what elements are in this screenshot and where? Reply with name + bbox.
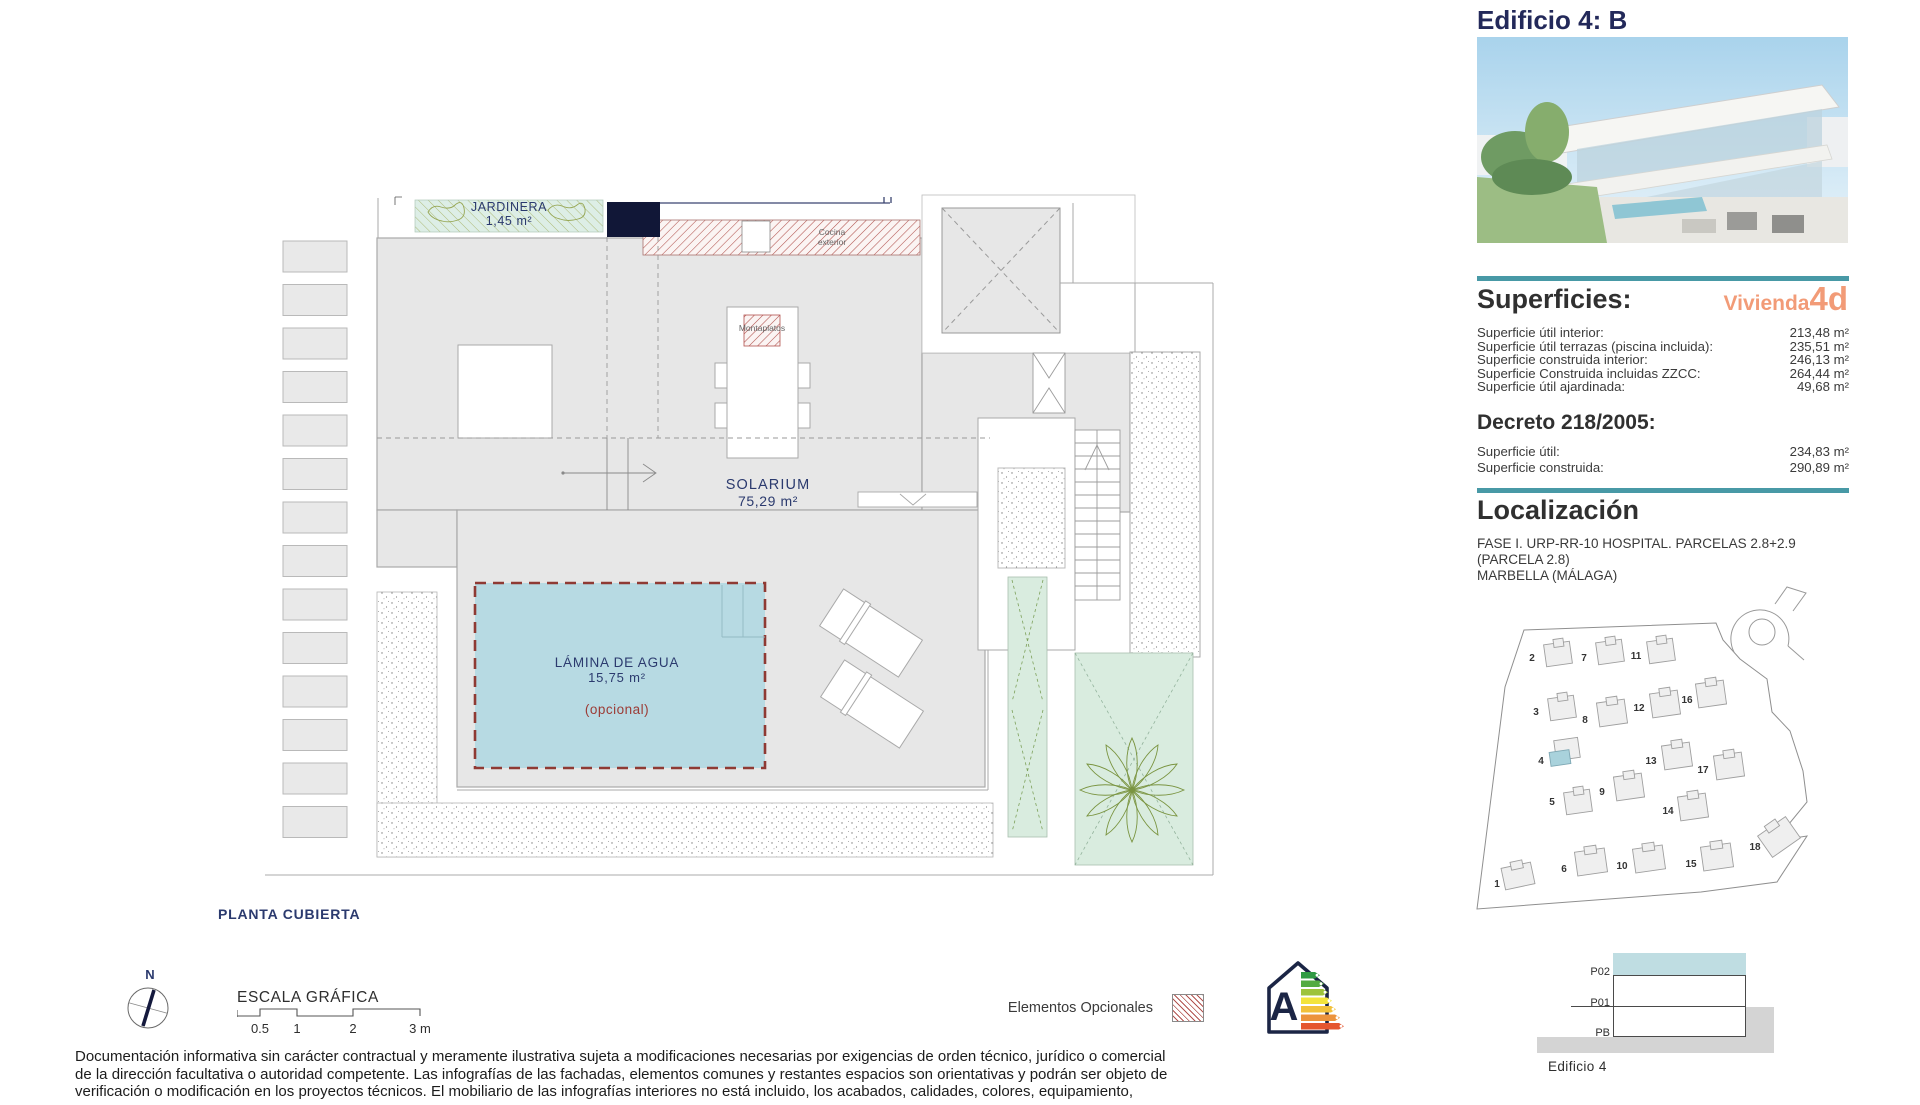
jardinera-label: JARDINERA 1,45 m² [429,200,589,228]
scale-tick: 3 m [409,1021,431,1036]
planter-bed [1075,653,1193,865]
table-row: Superficie Construida incluidas ZZCC: 26… [1477,367,1849,381]
row-value: 290,89 m² [1790,460,1849,476]
solarium-name: SOLARIUM [688,477,848,493]
row-value: 49,68 m² [1797,380,1849,394]
row-value: 246,13 m² [1790,353,1849,367]
pool-name: LÁMINA DE AGUA [527,655,707,670]
shaft [1033,353,1065,413]
jardinera-name: JARDINERA [429,200,589,214]
row-value: 264,44 m² [1790,367,1849,381]
divider-bar [1477,488,1849,493]
map-number: 2 [1529,653,1535,664]
map-number: 5 [1549,797,1555,808]
site-plan-map: 1 2 3 4 5 6 7 8 9 10 11 12 13 14 15 16 1… [1470,580,1920,910]
map-number: 4 [1538,756,1544,767]
map-number: 17 [1697,765,1709,776]
disclaimer-text: Documentación informativa sin carácter c… [75,1048,1167,1101]
table-row: Superficie útil terrazas (piscina inclui… [1477,340,1849,354]
solarium-area: 75,29 m² [688,493,848,509]
map-number: 11 [1631,651,1642,662]
scale-bar: 0.5 1 2 3 m [237,1003,437,1037]
energy-scale-bars [1301,972,1344,1030]
table-row: Superficie útil interior: 213,48 m² [1477,326,1849,340]
map-number: 7 [1581,653,1587,664]
map-number: 9 [1599,787,1605,798]
address-line: FASE I. URP-RR-10 HOSPITAL. PARCELAS 2.8… [1477,536,1796,552]
planter-strip [1008,577,1047,837]
section-ground [1746,1007,1774,1037]
section-caption: Edificio 4 [1548,1059,1607,1074]
disclaimer-line: Documentación informativa sin carácter c… [75,1048,1167,1066]
row-value: 234,83 m² [1790,444,1849,460]
map-number: 12 [1633,703,1645,714]
row-label: Superficie construida interior: [1477,353,1648,367]
optional-elements-label: Elementos Opcionales [953,1000,1153,1016]
map-number: 14 [1662,806,1674,817]
north-arrow-icon: N [110,955,190,1035]
map-number: 10 [1616,861,1628,872]
gravel-strip-right [1130,352,1200,657]
section-level-label: PB [1560,1027,1610,1039]
north-label: N [145,967,154,982]
energy-rating-letter: A [1270,985,1299,1029]
disclaimer-line: de la dirección facultativa o autoridad … [75,1066,1167,1084]
vivienda-label: Vivienda [1723,292,1809,315]
map-number: 3 [1533,707,1539,718]
plan-title: PLANTA CUBIERTA [218,906,360,922]
map-number: 13 [1645,756,1657,767]
scale-tick: 1 [293,1021,300,1036]
scale-tick: 0.5 [251,1021,269,1036]
map-number: 15 [1685,859,1697,870]
map-number: 6 [1561,864,1567,875]
section-level-label: P01 [1560,997,1610,1009]
neighbour-roof-strip [283,241,347,838]
disclaimer-line: verificación o modificación en los proye… [75,1083,1167,1101]
localizacion-heading: Localización [1477,495,1639,526]
pool-optional-label: (opcional) [527,702,707,717]
cocina-exterior-zone [643,220,920,255]
highlighted-unit [1549,750,1571,767]
roundabout [1731,587,1806,660]
row-label: Superficie útil interior: [1477,326,1604,340]
section-level-label: P02 [1560,966,1610,978]
jardinera-area: 1,45 m² [429,214,589,228]
skylight [942,208,1060,333]
cocina-exterior-label: Cocina exterior [806,228,858,247]
page: JARDINERA 1,45 m² Cocina exterior Montap… [0,0,1920,1105]
floor-plan-drawing [0,0,1470,1105]
section-ground [1537,1037,1774,1053]
table-row: Superficie útil: 234,83 m² [1477,444,1849,460]
roof-opening [458,345,552,438]
row-label: Superficie Construida incluidas ZZCC: [1477,367,1701,381]
vivienda-tag: Vivienda4d [1477,280,1848,318]
map-number: 1 [1494,879,1500,890]
map-number: 18 [1749,842,1761,853]
row-label: Superficie útil ajardinada: [1477,380,1625,394]
chimney-block [607,202,660,237]
section-highlighted-level [1613,953,1746,975]
table-row: Superficie construida: 290,89 m² [1477,460,1849,476]
optional-hatch-swatch [1172,994,1204,1022]
map-number: 8 [1582,715,1588,726]
stair-enclosure-gravel [998,468,1065,568]
wall-tick [395,197,402,205]
vivienda-unit: 4d [1809,280,1848,317]
solarium-label: SOLARIUM 75,29 m² [688,477,848,509]
energy-rating-icon: A [1253,958,1345,1038]
vent [858,492,977,507]
table-row: Superficie útil ajardinada: 49,68 m² [1477,380,1849,394]
scale-tick: 2 [349,1021,356,1036]
superficies-table: Superficie útil interior: 213,48 m² Supe… [1477,326,1849,394]
pool-label: LÁMINA DE AGUA 15,75 m² [527,655,707,685]
decreto-heading: Decreto 218/2005: [1477,411,1656,435]
row-label: Superficie útil: [1477,444,1560,460]
pool-area: 15,75 m² [527,670,707,685]
table-row: Superficie construida interior: 246,13 m… [1477,353,1849,367]
decreto-table: Superficie útil: 234,83 m² Superficie co… [1477,444,1849,475]
address-line: (PARCELA 2.8) [1477,552,1796,568]
montaplatos-label: Montaplatos [731,324,793,334]
row-value: 213,48 m² [1790,326,1849,340]
page-title: Edificio 4: B [1477,5,1627,36]
row-label: Superficie útil terrazas (piscina inclui… [1477,340,1713,354]
localizacion-address: FASE I. URP-RR-10 HOSPITAL. PARCELAS 2.8… [1477,536,1796,584]
glass-railing-line [660,197,891,203]
building-render-image [1477,37,1848,243]
row-value: 235,51 m² [1790,340,1849,354]
staircase [1075,430,1120,600]
map-number: 16 [1681,695,1693,706]
row-label: Superficie construida: [1477,460,1604,476]
